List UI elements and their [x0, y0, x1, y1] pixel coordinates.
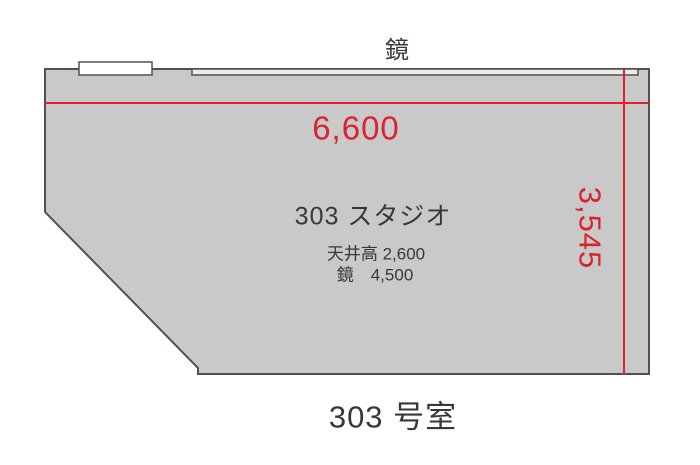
studio-name: 303 スタジオ [295, 205, 452, 230]
ceiling-height-spec: 天井高 2,600 [327, 246, 425, 263]
height-dimension-value: 3,545 [575, 187, 606, 270]
mirror-strip [192, 69, 638, 75]
door [79, 62, 152, 75]
width-dimension-value: 6,600 [312, 112, 400, 145]
room-number: 303 号室 [329, 402, 457, 433]
mirror-wall-label: 鏡 [385, 39, 409, 63]
mirror-length-spec: 鏡 4,500 [337, 267, 414, 284]
floor-plan: 鏡 6,600 3,545 303 スタジオ 天井高 2,600 鏡 4,500… [0, 0, 700, 465]
